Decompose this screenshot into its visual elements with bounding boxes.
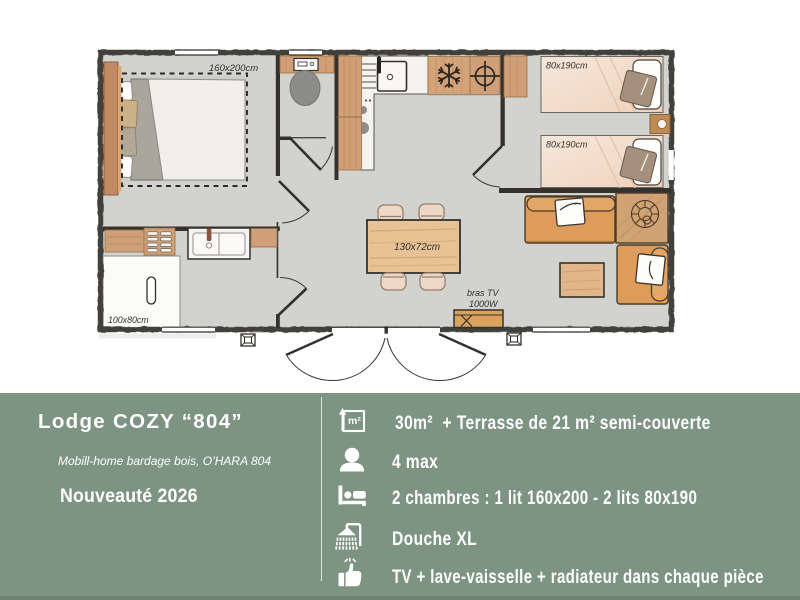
svg-text:100x80cm: 100x80cm: [108, 315, 149, 325]
svg-text:bras TV: bras TV: [467, 288, 500, 298]
svg-text:130x72cm: 130x72cm: [394, 242, 440, 253]
svg-text:80x190cm: 80x190cm: [546, 61, 588, 71]
svg-text:160x200cm: 160x200cm: [209, 63, 258, 74]
svg-text:80x190cm: 80x190cm: [546, 140, 588, 150]
svg-text:1000W: 1000W: [469, 299, 499, 309]
